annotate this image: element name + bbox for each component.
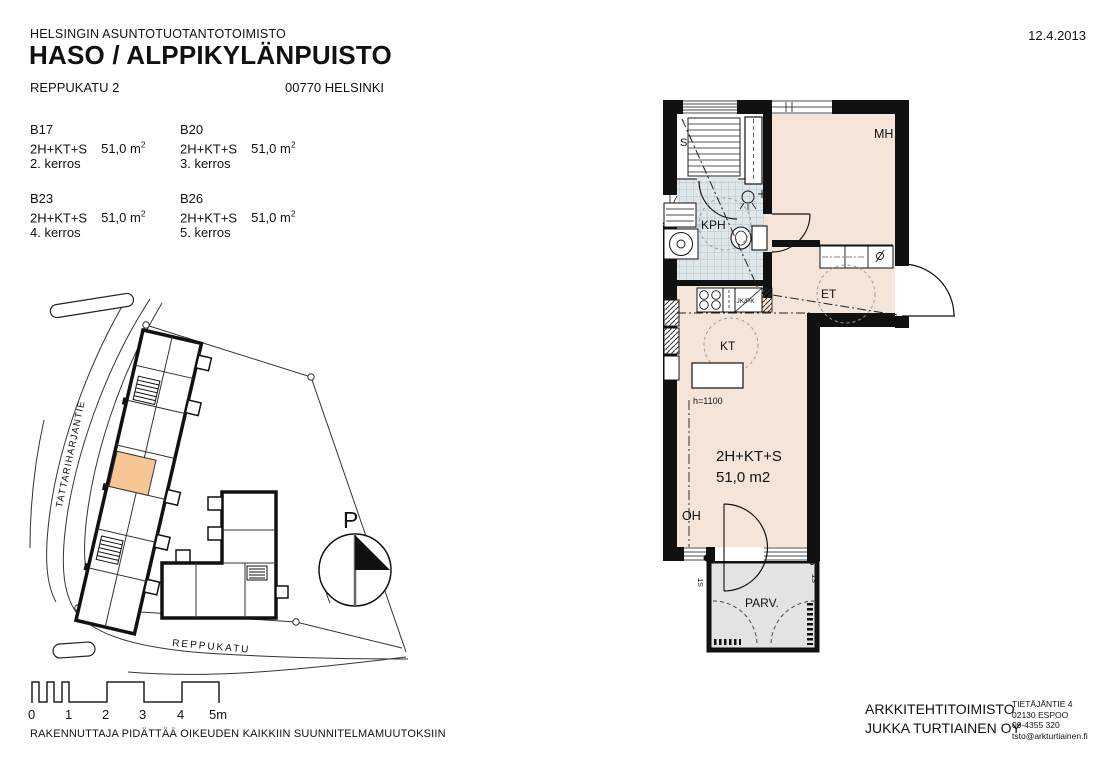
apartment-id: B23 xyxy=(30,191,182,207)
postal-city: 00770 HELSINKI xyxy=(285,80,384,95)
entry-door xyxy=(902,264,955,316)
stove-icon xyxy=(697,288,723,312)
north-arrow-icon: P xyxy=(319,507,391,606)
architect-firm: ARKKITEHTITOIMISTO JUKKA TURTIAINEN OY xyxy=(865,700,1021,738)
sauna-benches xyxy=(688,118,740,176)
scale-bar: 0 1 2 3 4 5m xyxy=(22,676,237,726)
scale-bar-shape xyxy=(32,682,219,703)
kitchen-end-hatch xyxy=(762,288,772,312)
architect-address-line2: 02130 ESPOO xyxy=(1012,710,1088,721)
architect-address-line1: TIETÄJÄNTIE 4 xyxy=(1012,699,1088,710)
apartment-card: B26 2H+KT+S51,0 m2 5. kerros xyxy=(180,191,332,241)
room-label-sauna: S xyxy=(680,137,687,149)
room-label-hall: ET xyxy=(821,287,837,301)
scale-tick: 3 xyxy=(139,707,146,722)
room-label-balcony: PARV. xyxy=(745,596,779,610)
apartment-card: B20 2H+KT+S51,0 m2 3. kerros xyxy=(180,122,332,172)
traffic-island-top xyxy=(49,293,134,318)
kitchen-counter xyxy=(692,363,743,388)
fridge-freezer-icon: JK/PK xyxy=(735,288,762,312)
room-label-bedroom: MH xyxy=(874,127,893,141)
apartment-floor: 3. kerros xyxy=(180,156,332,172)
architect-firm-line2: JUKKA TURTIAINEN OY xyxy=(865,719,1021,738)
architect-phone: 09-4355 320 xyxy=(1012,720,1088,731)
laundry-fixtures xyxy=(664,203,698,259)
apartment-card: B17 2H+KT+S51,0 m2 2. kerros xyxy=(30,122,182,172)
counter-height-label: h=1100 xyxy=(693,396,723,406)
apartment-id: B26 xyxy=(180,191,332,207)
traffic-island-bottom xyxy=(53,642,96,659)
apartment-type-area: 2H+KT+S51,0 m2 xyxy=(30,138,182,157)
apartment-type-area: 2H+KT+S51,0 m2 xyxy=(180,138,332,157)
scale-tick: 2 xyxy=(102,707,109,722)
apartment-id: B20 xyxy=(180,122,332,138)
kitchen-tall-units xyxy=(664,300,679,380)
drawing-date: 12.4.2013 xyxy=(1028,28,1086,43)
room-label-bathroom: KPH xyxy=(701,218,726,232)
balcony-post-dot xyxy=(704,555,711,562)
architect-contact: TIETÄJÄNTIE 4 02130 ESPOO 09-4355 320 ts… xyxy=(1012,699,1088,741)
architect-email: tsto@arkturtiainen.fi xyxy=(1012,731,1088,742)
scale-tick: 0 xyxy=(28,707,35,722)
apartment-card: B23 2H+KT+S51,0 m2 4. kerros xyxy=(30,191,182,241)
north-label: P xyxy=(343,507,358,533)
hall-wardrobes xyxy=(820,245,893,268)
apartment-type-area: 2H+KT+S51,0 m2 xyxy=(30,207,182,226)
architect-firm-line1: ARKKITEHTITOIMISTO xyxy=(865,700,1021,719)
site-building-l xyxy=(162,492,288,618)
room-label-kitchen: KT xyxy=(720,339,736,353)
page-title: HASO / ALPPIKYLÄNPUISTO xyxy=(29,40,392,71)
disclaimer-text: RAKENNUTTAJA PIDÄTTÄÄ OIKEUDEN KAIKKIIN … xyxy=(30,728,446,740)
apartment-floor: 2. kerros xyxy=(30,156,182,172)
apartment-type-label: 2H+KT+S xyxy=(716,448,782,465)
floor-plan: JK/PK S KPH MH ET KT xyxy=(650,90,980,670)
scale-tick: 4 xyxy=(177,707,184,722)
balcony-post-label: ST xyxy=(698,577,705,587)
fridge-freezer-label: JK/PK xyxy=(737,298,756,305)
room-label-living: OH xyxy=(682,509,701,523)
apartment-id: B17 xyxy=(30,122,182,138)
apartment-type-area: 2H+KT+S51,0 m2 xyxy=(180,207,332,226)
balcony-post-label: ST xyxy=(812,573,819,583)
apartment-floor: 5. kerros xyxy=(180,225,332,241)
scale-tick: 1 xyxy=(65,707,72,722)
sink-unit xyxy=(723,288,735,312)
drawing-sheet: HELSINGIN ASUNTOTUOTANTOTOIMISTO HASO / … xyxy=(0,0,1099,768)
organization-name: HELSINGIN ASUNTOTUOTANTOTOIMISTO xyxy=(30,27,286,41)
scale-tick: 5m xyxy=(209,707,227,722)
site-plan: TATTARIHARJANTIE REPPUKATU P xyxy=(15,293,415,683)
apartment-area-label: 51,0 m2 xyxy=(716,469,770,486)
street-address: REPPUKATU 2 xyxy=(30,80,119,95)
apartment-floor: 4. kerros xyxy=(30,225,182,241)
